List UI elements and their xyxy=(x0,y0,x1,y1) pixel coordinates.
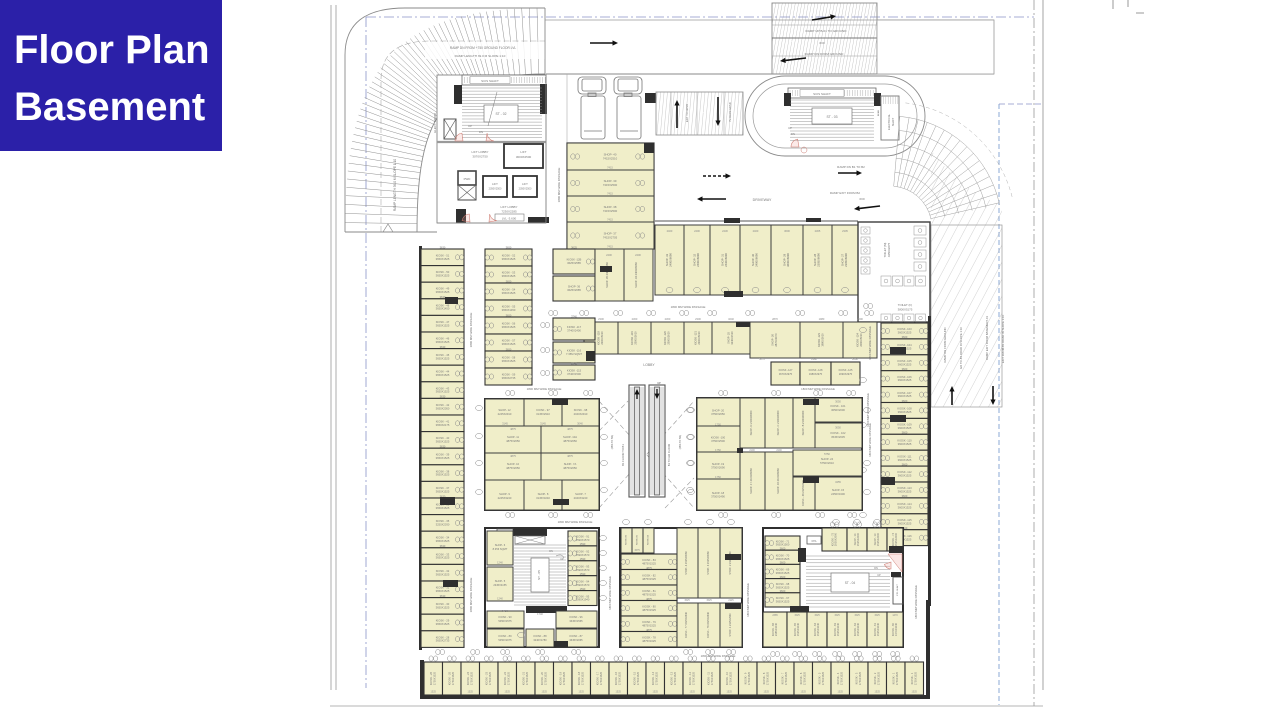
svg-text:7415: 7415 xyxy=(607,218,613,222)
svg-text:1750X1525: 1750X1525 xyxy=(488,671,492,685)
svg-text:DN: DN xyxy=(549,550,553,553)
svg-text:LIFT: LIFT xyxy=(522,182,528,186)
svg-text:3650X1525: 3650X1525 xyxy=(776,557,790,561)
svg-text:3750X2490: 3750X2490 xyxy=(711,495,725,499)
svg-text:2245X2910: 2245X2910 xyxy=(498,412,512,416)
svg-text:KIOSK - 46 2125X2100: KIOSK - 46 2125X2100 xyxy=(802,479,805,506)
svg-text:KIOSK - 75: KIOSK - 75 xyxy=(830,532,834,546)
svg-text:SHOP- C 2100X6060: SHOP- C 2100X6060 xyxy=(776,410,780,435)
svg-text:LVL -3.600: LVL -3.600 xyxy=(502,217,517,221)
svg-text:1525: 1525 xyxy=(838,691,844,694)
svg-text:3650X1525: 3650X1525 xyxy=(776,585,790,589)
svg-text:RAMP LENGTH 39.0 M SLOPE 1:10: RAMP LENGTH 39.0 M SLOPE 1:10 xyxy=(455,54,506,58)
svg-text:3750X2690: 3750X2690 xyxy=(711,466,725,470)
svg-text:SCIS SHAFT: SCIS SHAFT xyxy=(813,92,831,96)
svg-text:1750X1525: 1750X1525 xyxy=(840,671,844,685)
svg-text:(35% TO 5%): (35% TO 5%) xyxy=(679,435,682,450)
svg-text:1800 MM WIDE PASSAGE: 1800 MM WIDE PASSAGE xyxy=(701,654,736,658)
svg-text:3450: 3450 xyxy=(502,609,508,613)
svg-text:KIOSK - 77 1525X2940: KIOSK - 77 1525X2940 xyxy=(685,611,688,638)
svg-text:2590X1570: 2590X1570 xyxy=(576,538,590,542)
svg-text:IN FROM GRND: IN FROM GRND xyxy=(728,102,732,121)
svg-text:3600: 3600 xyxy=(780,547,786,551)
svg-text:KIOSK - 64: KIOSK - 64 xyxy=(813,622,817,636)
svg-text:1750X1525: 1750X1525 xyxy=(895,671,899,685)
svg-text:KIOSK - 95: KIOSK - 95 xyxy=(576,594,590,598)
svg-text:7415X2510: 7415X2510 xyxy=(603,157,618,161)
svg-text:3600X1525: 3600X1525 xyxy=(898,331,912,335)
svg-text:1980: 1980 xyxy=(811,357,817,361)
svg-text:3645X1565: 3645X1565 xyxy=(569,619,583,623)
svg-text:1590: 1590 xyxy=(580,572,586,576)
svg-text:KIOSK - 59: KIOSK - 59 xyxy=(502,373,516,377)
svg-text:3630: 3630 xyxy=(440,544,446,548)
svg-text:4875X1525: 4875X1525 xyxy=(642,577,656,581)
svg-text:1800 MM WIDE PASSAGE: 1800 MM WIDE PASSAGE xyxy=(557,168,561,203)
svg-text:3650X2735: 3650X2735 xyxy=(436,639,450,643)
svg-text:KIOSK-85: KIOSK-85 xyxy=(637,534,639,545)
svg-text:2450X3400: 2450X3400 xyxy=(831,492,845,496)
svg-text:7415X2500: 7415X2500 xyxy=(603,209,618,213)
svg-text:3650X1450: 3650X1450 xyxy=(502,308,516,312)
svg-text:2400: 2400 xyxy=(694,229,700,233)
svg-text:5750X2610: 5750X2610 xyxy=(820,461,834,465)
svg-text:KIOSK - 94: KIOSK - 94 xyxy=(576,579,590,583)
svg-text:1750X1525: 1750X1525 xyxy=(692,671,696,685)
svg-text:1740: 1740 xyxy=(537,612,543,616)
svg-text:KIOSK - 5: KIOSK - 5 xyxy=(818,672,822,684)
svg-text:1525: 1525 xyxy=(875,691,881,694)
svg-text:3040: 3040 xyxy=(577,422,583,426)
svg-text:RAMP DN FROM +750 GROUND FLOO: RAMP DN FROM +750 GROUND FLOOR LVL xyxy=(450,46,516,50)
svg-text:B1 TO GR FLOOR: B1 TO GR FLOOR xyxy=(667,444,671,467)
svg-text:DN: DN xyxy=(874,567,878,570)
svg-text:KIOSK - 91: KIOSK - 91 xyxy=(576,535,590,539)
svg-text:3145X2910: 3145X2910 xyxy=(536,412,550,416)
svg-text:KIOSK - 87: KIOSK - 87 xyxy=(569,634,583,638)
svg-text:3740: 3740 xyxy=(571,361,577,365)
svg-text:1240: 1240 xyxy=(497,597,503,601)
svg-text:SHOP- 7A: SHOP- 7A xyxy=(564,462,577,466)
svg-text:SHOP- 27: SHOP- 27 xyxy=(841,253,845,266)
svg-text:3600X1525: 3600X1525 xyxy=(898,505,912,509)
svg-text:ST - 04: ST - 04 xyxy=(845,581,856,585)
svg-text:5450X2075: 5450X2075 xyxy=(498,638,512,642)
svg-text:KIOSK - 71: KIOSK - 71 xyxy=(776,539,790,543)
svg-text:4875: 4875 xyxy=(510,427,516,431)
svg-text:3650X1525: 3650X1525 xyxy=(502,291,516,295)
svg-text:SHOP- 20: SHOP- 20 xyxy=(712,409,725,413)
svg-text:KIOSK - 44: KIOSK - 44 xyxy=(436,370,450,374)
svg-text:KIOSK - 30: KIOSK - 30 xyxy=(436,602,450,606)
svg-text:7415: 7415 xyxy=(607,245,613,249)
svg-text:STR-SHAFT: STR-SHAFT xyxy=(896,583,899,596)
svg-text:4875: 4875 xyxy=(567,454,573,458)
svg-text:3600X1525: 3600X1525 xyxy=(898,474,912,478)
svg-text:2350X2500: 2350X2500 xyxy=(489,188,502,191)
svg-text:3650X1525: 3650X1525 xyxy=(436,589,450,593)
svg-text:1525: 1525 xyxy=(912,691,918,694)
svg-text:3800X5175: 3800X5175 xyxy=(898,308,913,312)
svg-text:KIOSK - 21: KIOSK - 21 xyxy=(522,671,526,685)
svg-text:KIOSK - 8: KIOSK - 8 xyxy=(762,672,766,684)
svg-text:LIFT: LIFT xyxy=(492,182,498,186)
svg-text:KIOSK - 46: KIOSK - 46 xyxy=(436,337,450,341)
svg-text:B1 FLOOR TO B1: B1 FLOOR TO B1 xyxy=(621,444,625,466)
svg-text:3600: 3600 xyxy=(902,431,908,435)
svg-text:3000X2500: 3000X2500 xyxy=(516,155,532,159)
svg-text:3600: 3600 xyxy=(902,335,908,339)
svg-text:KIOSK - 55: KIOSK - 55 xyxy=(502,305,516,309)
svg-text:3650X1450: 3650X1450 xyxy=(436,307,450,311)
svg-text:1750X1525: 1750X1525 xyxy=(766,671,770,685)
svg-text:1525: 1525 xyxy=(814,614,820,617)
svg-text:1525: 1525 xyxy=(706,599,712,602)
svg-text:3600: 3600 xyxy=(902,462,908,466)
svg-text:KIOSK - 16: KIOSK - 16 xyxy=(614,671,618,685)
svg-text:KIOSK - 28: KIOSK - 28 xyxy=(436,635,450,639)
svg-text:SHOP- 34 2400X6060: SHOP- 34 2400X6060 xyxy=(634,262,638,288)
svg-text:1525: 1525 xyxy=(542,691,548,694)
svg-text:4875X1625: 4875X1625 xyxy=(642,639,656,643)
svg-text:KIOSK - 37: KIOSK - 37 xyxy=(436,486,450,490)
svg-text:4875X2650: 4875X2650 xyxy=(506,466,520,470)
svg-text:RAMP DN FROM GROUND: RAMP DN FROM GROUND xyxy=(805,52,845,56)
svg-text:3070: 3070 xyxy=(759,357,765,361)
svg-text:3650X1525: 3650X1525 xyxy=(436,606,450,610)
svg-text:1750X1525: 1750X1525 xyxy=(506,671,510,685)
svg-text:3650X1525: 3650X1525 xyxy=(502,359,516,363)
svg-text:3240X1780: 3240X1780 xyxy=(533,638,547,642)
svg-text:3630: 3630 xyxy=(440,345,446,349)
svg-text:7415: 7415 xyxy=(607,192,613,196)
svg-text:2400: 2400 xyxy=(635,253,641,257)
svg-text:3650X1525: 3650X1525 xyxy=(436,556,450,560)
svg-text:4875: 4875 xyxy=(646,566,652,570)
svg-text:3650X1525: 3650X1525 xyxy=(436,340,450,344)
svg-text:KIOSK - 98: KIOSK - 98 xyxy=(574,408,588,412)
svg-text:3650X2050: 3650X2050 xyxy=(436,406,450,410)
svg-text:1525: 1525 xyxy=(854,614,860,617)
svg-text:1525: 1525 xyxy=(468,691,474,694)
svg-text:1800 MM WIDE PASSAGE: 1800 MM WIDE PASSAGE xyxy=(868,423,872,457)
svg-text:4875: 4875 xyxy=(567,427,573,431)
svg-text:1525: 1525 xyxy=(684,599,690,602)
svg-text:RAMP LENGTH 39.0 M SLOPE 1:10: RAMP LENGTH 39.0 M SLOPE 1:10 xyxy=(393,159,397,211)
svg-text:ELECTRICAL: ELECTRICAL xyxy=(887,113,891,130)
svg-text:1525X3040: 1525X3040 xyxy=(856,622,860,636)
svg-text:SHOP- 15: SHOP- 15 xyxy=(832,488,845,492)
svg-text:KIOSK - 79: KIOSK - 79 xyxy=(642,620,656,624)
svg-text:3600: 3600 xyxy=(780,589,786,593)
svg-text:KIOSK - 18: KIOSK - 18 xyxy=(577,671,581,685)
svg-text:SHOP- 33: SHOP- 33 xyxy=(665,253,669,266)
svg-text:3650X1525: 3650X1525 xyxy=(436,357,450,361)
svg-text:3630: 3630 xyxy=(440,295,446,299)
svg-text:1750X1525: 1750X1525 xyxy=(729,671,733,685)
svg-text:3050: 3050 xyxy=(835,426,841,430)
svg-text:KIOSK - 7: KIOSK - 7 xyxy=(781,672,785,684)
svg-text:2400: 2400 xyxy=(753,229,759,233)
svg-text:1800 MM WIDE PASSAGE: 1800 MM WIDE PASSAGE xyxy=(868,326,872,360)
svg-text:4875X1525: 4875X1525 xyxy=(642,608,656,612)
svg-text:1240: 1240 xyxy=(497,561,503,565)
svg-text:2300X5010: 2300X5010 xyxy=(634,331,638,345)
svg-text:UP: UP xyxy=(788,126,792,130)
svg-text:1750X1525: 1750X1525 xyxy=(599,671,603,685)
svg-text:KIOSK -128: KIOSK -128 xyxy=(809,368,823,372)
svg-text:KIOSK -110: KIOSK -110 xyxy=(897,438,912,442)
svg-text:KIOSK - 67: KIOSK - 67 xyxy=(776,596,790,600)
svg-text:2100: 2100 xyxy=(776,449,782,452)
svg-text:1980X2975: 1980X2975 xyxy=(809,372,823,376)
svg-text:2400X6090: 2400X6090 xyxy=(755,253,759,267)
svg-text:TOILET (F): TOILET (F) xyxy=(898,303,913,307)
svg-text:1590: 1590 xyxy=(580,587,586,591)
svg-text:KIOSK -127: KIOSK -127 xyxy=(779,368,793,372)
svg-text:3650X1525: 3650X1525 xyxy=(436,489,450,493)
svg-text:SHOP- 5: SHOP- 5 xyxy=(495,579,506,583)
svg-text:RAMP EXIT FROM B2: RAMP EXIT FROM B2 xyxy=(830,191,861,195)
svg-text:2300: 2300 xyxy=(665,317,671,321)
svg-text:3650X1525: 3650X1525 xyxy=(436,572,450,576)
svg-text:2100: 2100 xyxy=(749,449,755,452)
svg-text:SHOP- 6: SHOP- 6 xyxy=(495,543,506,547)
svg-text:3600X1525: 3600X1525 xyxy=(898,521,912,525)
svg-text:LIFT: LIFT xyxy=(520,150,526,154)
svg-text:3740: 3740 xyxy=(571,314,577,318)
svg-text:KIOSK - 93: KIOSK - 93 xyxy=(576,565,590,569)
svg-text:1525X3040: 1525X3040 xyxy=(796,622,800,636)
svg-text:3145: 3145 xyxy=(540,422,546,426)
svg-text:2090: 2090 xyxy=(857,317,863,321)
svg-text:1800 MM WIDE PASSAGE: 1800 MM WIDE PASSAGE xyxy=(914,585,918,619)
svg-text:KIOSK - 9: KIOSK - 9 xyxy=(744,672,748,684)
svg-text:1750X1525: 1750X1525 xyxy=(451,671,455,685)
svg-text:3650X1525: 3650X1525 xyxy=(436,257,450,261)
svg-text:KIOSK - 76 1525X2940: KIOSK - 76 1525X2940 xyxy=(707,611,710,638)
svg-text:3600: 3600 xyxy=(780,575,786,579)
svg-text:KIOSK - 50: KIOSK - 50 xyxy=(436,270,450,274)
svg-text:3630: 3630 xyxy=(440,445,446,449)
svg-text:KIOSK - 58: KIOSK - 58 xyxy=(502,356,516,360)
svg-text:KIOSK - 40: KIOSK - 40 xyxy=(436,436,450,440)
svg-text:1750X1525: 1750X1525 xyxy=(710,671,714,685)
svg-text:2300: 2300 xyxy=(632,317,638,321)
svg-text:RAMP DN B1 TO B2: RAMP DN B1 TO B2 xyxy=(837,165,865,169)
svg-text:3650X1525: 3650X1525 xyxy=(502,257,516,261)
svg-text:SHOP- 11: SHOP- 11 xyxy=(507,435,520,439)
svg-text:1525: 1525 xyxy=(505,691,511,694)
svg-text:2090: 2090 xyxy=(852,357,858,361)
svg-text:3050X2000: 3050X2000 xyxy=(831,408,845,412)
svg-text:1800 MM WIDE PASSAGE: 1800 MM WIDE PASSAGE xyxy=(608,576,612,610)
svg-text:2430: 2430 xyxy=(722,229,728,233)
svg-text:1575: 1575 xyxy=(634,549,640,552)
svg-text:3600X1525: 3600X1525 xyxy=(898,362,912,366)
svg-text:SHOP- 29: SHOP- 29 xyxy=(783,253,787,266)
svg-text:SHOP- 13: SHOP- 13 xyxy=(873,533,877,545)
svg-text:KIOSK - 1: KIOSK - 1 xyxy=(910,672,914,684)
svg-text:4875X2650: 4875X2650 xyxy=(563,466,577,470)
svg-text:KIOSK - 41: KIOSK - 41 xyxy=(436,420,450,424)
svg-text:KIOSK - 17: KIOSK - 17 xyxy=(596,671,600,685)
svg-text:3740X2400: 3740X2400 xyxy=(567,329,581,333)
svg-text:3650: 3650 xyxy=(506,347,512,351)
svg-text:UP: UP xyxy=(877,574,881,577)
svg-text:3630: 3630 xyxy=(440,594,446,598)
svg-text:KIOSK - 101: KIOSK - 101 xyxy=(830,404,846,408)
svg-text:KIOSK -115: KIOSK -115 xyxy=(567,369,582,373)
svg-text:KIOSK - 102: KIOSK - 102 xyxy=(830,431,846,435)
svg-text:1470: 1470 xyxy=(892,614,898,617)
svg-text:SHOP- 4 1525X9060: SHOP- 4 1525X9060 xyxy=(685,551,688,575)
svg-text:KIOSK -112: KIOSK -112 xyxy=(897,470,912,474)
svg-text:ST - 05: ST - 05 xyxy=(537,570,541,580)
svg-text:KIOSK -123: KIOSK -123 xyxy=(817,333,821,347)
svg-text:KIOSK - 45: KIOSK - 45 xyxy=(436,353,450,357)
svg-text:2400X6090: 2400X6090 xyxy=(669,253,673,267)
svg-text:KIOSK - 15: KIOSK - 15 xyxy=(633,671,637,685)
svg-text:KIOSK - 51: KIOSK - 51 xyxy=(436,254,450,258)
svg-text:3650X1525: 3650X1525 xyxy=(436,506,450,510)
svg-text:1750: 1750 xyxy=(715,448,721,452)
svg-text:2350X2500: 2350X2500 xyxy=(519,188,532,191)
svg-text:RAMP DN FROM GROUND: RAMP DN FROM GROUND xyxy=(943,327,947,362)
svg-text:3600X1525: 3600X1525 xyxy=(898,490,912,494)
svg-text:3600: 3600 xyxy=(780,561,786,565)
svg-text:3600X1525: 3600X1525 xyxy=(898,442,912,446)
svg-text:KIOSK - 38: KIOSK - 38 xyxy=(436,469,450,473)
svg-text:2590X1570: 2590X1570 xyxy=(576,553,590,557)
svg-text:3645X2065: 3645X2065 xyxy=(569,638,583,642)
svg-text:1525: 1525 xyxy=(690,691,696,694)
svg-text:KIOSK - 29: KIOSK - 29 xyxy=(436,619,450,623)
svg-text:4450X2675: 4450X2675 xyxy=(887,242,891,257)
svg-text:1525: 1525 xyxy=(653,691,659,694)
svg-text:3650X1525: 3650X1525 xyxy=(436,539,450,543)
svg-text:7415X2705: 7415X2705 xyxy=(603,236,618,240)
svg-text:SHOP- B 2100X6060: SHOP- B 2100X6060 xyxy=(801,410,805,435)
svg-text:UP: UP xyxy=(468,124,472,128)
svg-text:3600: 3600 xyxy=(902,367,908,371)
svg-text:2400: 2400 xyxy=(606,253,612,257)
svg-text:KIOSK-86: KIOSK-86 xyxy=(626,534,628,545)
svg-text:3650X1525: 3650X1525 xyxy=(436,473,450,477)
svg-text:BEAM: BEAM xyxy=(877,110,880,116)
svg-text:2430X6090: 2430X6090 xyxy=(724,253,728,267)
svg-text:1750: 1750 xyxy=(715,423,721,427)
svg-text:1750X1525: 1750X1525 xyxy=(784,671,788,685)
svg-text:KIOSK - 1: KIOSK - 1 xyxy=(892,672,896,684)
svg-text:3600X1525: 3600X1525 xyxy=(898,458,912,462)
svg-text:2385: 2385 xyxy=(772,614,778,617)
svg-text:SHOP- 28: SHOP- 28 xyxy=(813,253,817,266)
svg-text:4875: 4875 xyxy=(646,628,652,632)
svg-text:2590X1940: 2590X1940 xyxy=(576,598,590,602)
svg-text:3070X2750: 3070X2750 xyxy=(472,155,488,159)
svg-text:LIFT LOBBY: LIFT LOBBY xyxy=(501,205,518,209)
svg-text:KIOSK - 54: KIOSK - 54 xyxy=(502,288,516,292)
svg-text:3240: 3240 xyxy=(728,317,734,321)
svg-text:KIOSK -106: KIOSK -106 xyxy=(897,375,912,379)
svg-text:KIOSK - 83: KIOSK - 83 xyxy=(642,558,656,562)
svg-text:SHOP- 12: SHOP- 12 xyxy=(498,408,511,412)
svg-text:KIOSK - 61: KIOSK - 61 xyxy=(873,622,877,636)
svg-text:KIOSK - 47: KIOSK - 47 xyxy=(436,320,450,324)
svg-text:2305X6090: 2305X6090 xyxy=(817,253,821,267)
svg-text:4875X1525: 4875X1525 xyxy=(642,561,656,565)
svg-text:GR TO-B1 ROAD IN SLOPE 1:10: GR TO-B1 ROAD IN SLOPE 1:10 xyxy=(959,327,963,369)
svg-text:3650X1525: 3650X1525 xyxy=(436,440,450,444)
svg-text:KIOSK - 60: KIOSK - 60 xyxy=(891,622,895,636)
svg-text:2305: 2305 xyxy=(815,229,821,233)
svg-text:3600X1525: 3600X1525 xyxy=(898,426,912,430)
svg-text:KIOSK -111: KIOSK -111 xyxy=(898,454,912,458)
svg-text:UP: UP xyxy=(657,381,661,385)
svg-text:3650X2175: 3650X2175 xyxy=(436,423,450,427)
svg-text:KIOSK - 52: KIOSK - 52 xyxy=(502,254,516,258)
svg-text:3650X1500: 3650X1500 xyxy=(776,543,790,547)
svg-text:3630: 3630 xyxy=(440,245,446,249)
svg-text:KIOSK - 81: KIOSK - 81 xyxy=(642,589,656,593)
svg-text:4875X1525: 4875X1525 xyxy=(642,623,656,627)
svg-text:2305: 2305 xyxy=(842,229,848,233)
svg-text:KIOSK-84: KIOSK-84 xyxy=(648,534,650,545)
svg-text:KIOSK - 19: KIOSK - 19 xyxy=(559,671,563,685)
svg-text:KIOSK -117: KIOSK -117 xyxy=(567,325,582,329)
svg-text:KIOSK - 11: KIOSK - 11 xyxy=(707,671,711,684)
svg-text:3630: 3630 xyxy=(440,395,446,399)
svg-text:1750X1525: 1750X1525 xyxy=(618,671,622,685)
svg-text:EXIT TO GRND: EXIT TO GRND xyxy=(685,104,689,122)
svg-text:2300X5010: 2300X5010 xyxy=(667,331,671,345)
svg-text:1750X1525: 1750X1525 xyxy=(544,671,548,685)
svg-text:KIOSK - 92: KIOSK - 92 xyxy=(576,550,590,554)
svg-text:KIOSK -124: KIOSK -124 xyxy=(856,333,860,347)
svg-text:3650X1525: 3650X1525 xyxy=(436,373,450,377)
svg-text:Floor Plan: Floor Plan xyxy=(14,28,210,72)
svg-text:3650: 3650 xyxy=(506,245,512,249)
svg-text:1525: 1525 xyxy=(801,691,807,694)
svg-text:7230X2285: 7230X2285 xyxy=(501,210,517,214)
svg-text:1590: 1590 xyxy=(580,542,586,546)
svg-text:2115: 2115 xyxy=(728,599,734,602)
svg-text:3600X1525: 3600X1525 xyxy=(898,378,912,382)
svg-text:KIOSK - 4: KIOSK - 4 xyxy=(836,672,840,684)
svg-text:RAMP EXIT FROM BASEMENT-01: RAMP EXIT FROM BASEMENT-01 xyxy=(985,316,989,360)
svg-text:3600: 3600 xyxy=(819,41,825,45)
svg-text:1525: 1525 xyxy=(834,614,840,617)
svg-text:3750X2500: 3750X2500 xyxy=(711,439,725,443)
svg-text:3650X1525: 3650X1525 xyxy=(436,456,450,460)
svg-text:3650: 3650 xyxy=(506,313,512,317)
svg-text:SHOP- 14: SHOP- 14 xyxy=(853,533,857,545)
svg-text:SHOP- 30: SHOP- 30 xyxy=(751,253,755,266)
svg-text:1800 MM WIDE PASSAGE: 1800 MM WIDE PASSAGE xyxy=(801,387,835,391)
svg-text:DN: DN xyxy=(791,132,795,136)
svg-text:KIOSK - 32: KIOSK - 32 xyxy=(436,569,450,573)
svg-text:4875: 4875 xyxy=(646,597,652,601)
svg-text:KIOSK - 53: KIOSK - 53 xyxy=(502,271,516,275)
svg-text:8.356 SQMT: 8.356 SQMT xyxy=(493,547,508,551)
svg-text:KIOSK -125: KIOSK -125 xyxy=(839,368,853,372)
svg-text:1525X3040: 1525X3040 xyxy=(876,622,880,636)
svg-text:7.35M SQMT: 7.35M SQMT xyxy=(566,352,582,356)
svg-text:KIOSK -120: KIOSK -120 xyxy=(663,331,667,345)
svg-text:2245X3240: 2245X3240 xyxy=(498,496,512,500)
svg-text:SHOP- 7: SHOP- 7 xyxy=(575,492,586,496)
